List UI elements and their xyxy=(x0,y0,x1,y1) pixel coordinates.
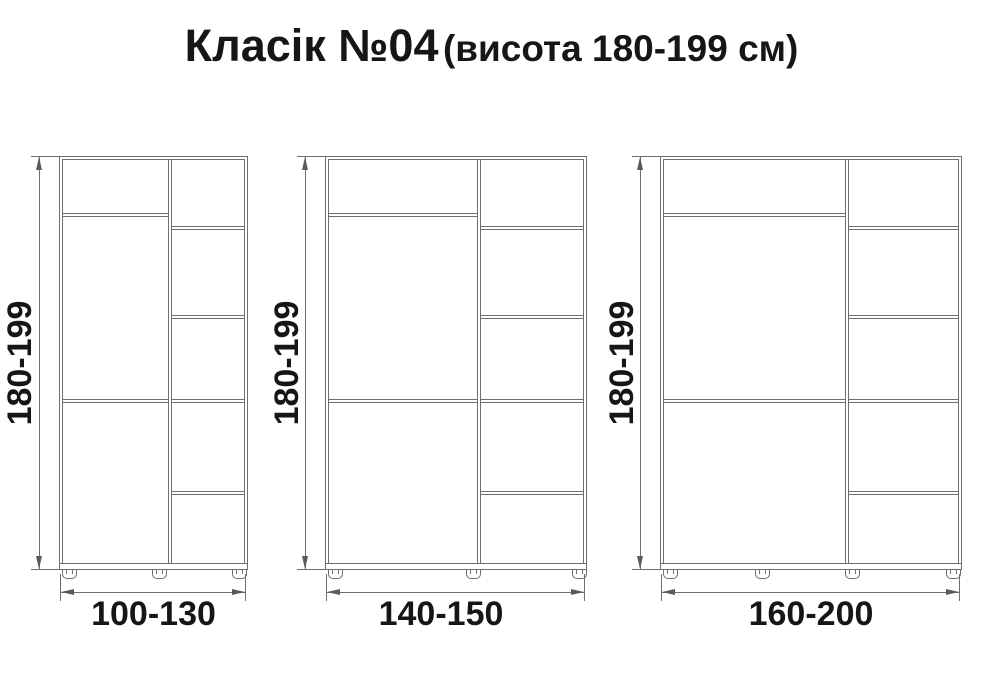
adjustable-foot xyxy=(466,570,481,579)
shelf xyxy=(481,226,583,230)
height-dimension-line xyxy=(39,157,40,569)
height-range-subtitle: (висота 180-199 см) xyxy=(443,28,798,69)
shelf xyxy=(849,226,958,230)
shelf xyxy=(329,213,477,217)
shelf xyxy=(481,315,583,319)
arrow-up-icon xyxy=(302,157,308,170)
wardrobe-size-diagram: Класік №04 (висота 180-199 см) 180-199 xyxy=(0,0,983,700)
dimension-extension-bottom xyxy=(31,569,59,570)
top-panel xyxy=(663,159,959,160)
side-panel-left xyxy=(62,159,63,563)
shelf xyxy=(329,399,477,403)
shelf xyxy=(172,399,244,403)
vertical-divider-panel xyxy=(845,160,849,563)
shelf xyxy=(664,213,845,217)
adjustable-foot xyxy=(62,570,77,579)
shelf xyxy=(849,315,958,319)
side-panel-right xyxy=(244,159,245,563)
adjustable-foot xyxy=(152,570,167,579)
arrow-up-icon xyxy=(637,157,643,170)
arrow-down-icon xyxy=(302,556,308,569)
adjustable-foot xyxy=(328,570,343,579)
arrow-right-icon xyxy=(571,589,584,595)
arrow-up-icon xyxy=(36,157,42,170)
side-panel-right xyxy=(583,159,584,563)
height-dimension-label: 180-199 xyxy=(604,278,640,448)
height-dimension-label: 180-199 xyxy=(2,278,38,448)
top-panel xyxy=(328,159,584,160)
arrow-right-icon xyxy=(232,589,245,595)
shelf xyxy=(172,226,244,230)
page-title: Класік №04 (висота 180-199 см) xyxy=(0,18,983,85)
vertical-divider-panel xyxy=(477,160,481,563)
dimension-extension-bottom xyxy=(632,569,660,570)
shelf xyxy=(849,491,958,495)
arrow-down-icon xyxy=(637,556,643,569)
width-dimension-line xyxy=(61,592,245,593)
width-dimension-line xyxy=(327,592,584,593)
width-dimension-label: 140-150 xyxy=(310,597,572,631)
shelf xyxy=(172,315,244,319)
adjustable-foot xyxy=(755,570,770,579)
side-panel-left xyxy=(663,159,664,563)
shelf xyxy=(172,491,244,495)
shelf xyxy=(849,399,958,403)
bottom-panel xyxy=(326,563,586,564)
adjustable-foot xyxy=(845,570,860,579)
vertical-divider-panel xyxy=(168,160,172,563)
dimension-extension-right xyxy=(584,574,585,601)
shelf xyxy=(664,399,845,403)
shelf xyxy=(63,213,168,217)
shelf xyxy=(63,399,168,403)
shelf xyxy=(481,491,583,495)
arrow-down-icon xyxy=(36,556,42,569)
wardrobe-1-carcass xyxy=(59,156,248,570)
bottom-panel xyxy=(661,563,961,564)
product-name: Класік №04 xyxy=(185,20,439,71)
arrow-left-icon xyxy=(61,589,74,595)
shelf xyxy=(481,399,583,403)
dimension-extension-bottom xyxy=(297,569,325,570)
arrow-left-icon xyxy=(327,589,340,595)
width-dimension-line xyxy=(662,592,959,593)
wardrobe-3-carcass xyxy=(660,156,962,570)
top-panel xyxy=(62,159,245,160)
adjustable-foot xyxy=(663,570,678,579)
width-dimension-label: 100-130 xyxy=(59,597,248,631)
arrow-left-icon xyxy=(662,589,675,595)
height-dimension-label: 180-199 xyxy=(269,278,305,448)
arrow-right-icon xyxy=(946,589,959,595)
side-panel-left xyxy=(328,159,329,563)
side-panel-right xyxy=(958,159,959,563)
width-dimension-label: 160-200 xyxy=(660,597,962,631)
wardrobe-2-carcass xyxy=(325,156,587,570)
bottom-panel xyxy=(60,563,247,564)
